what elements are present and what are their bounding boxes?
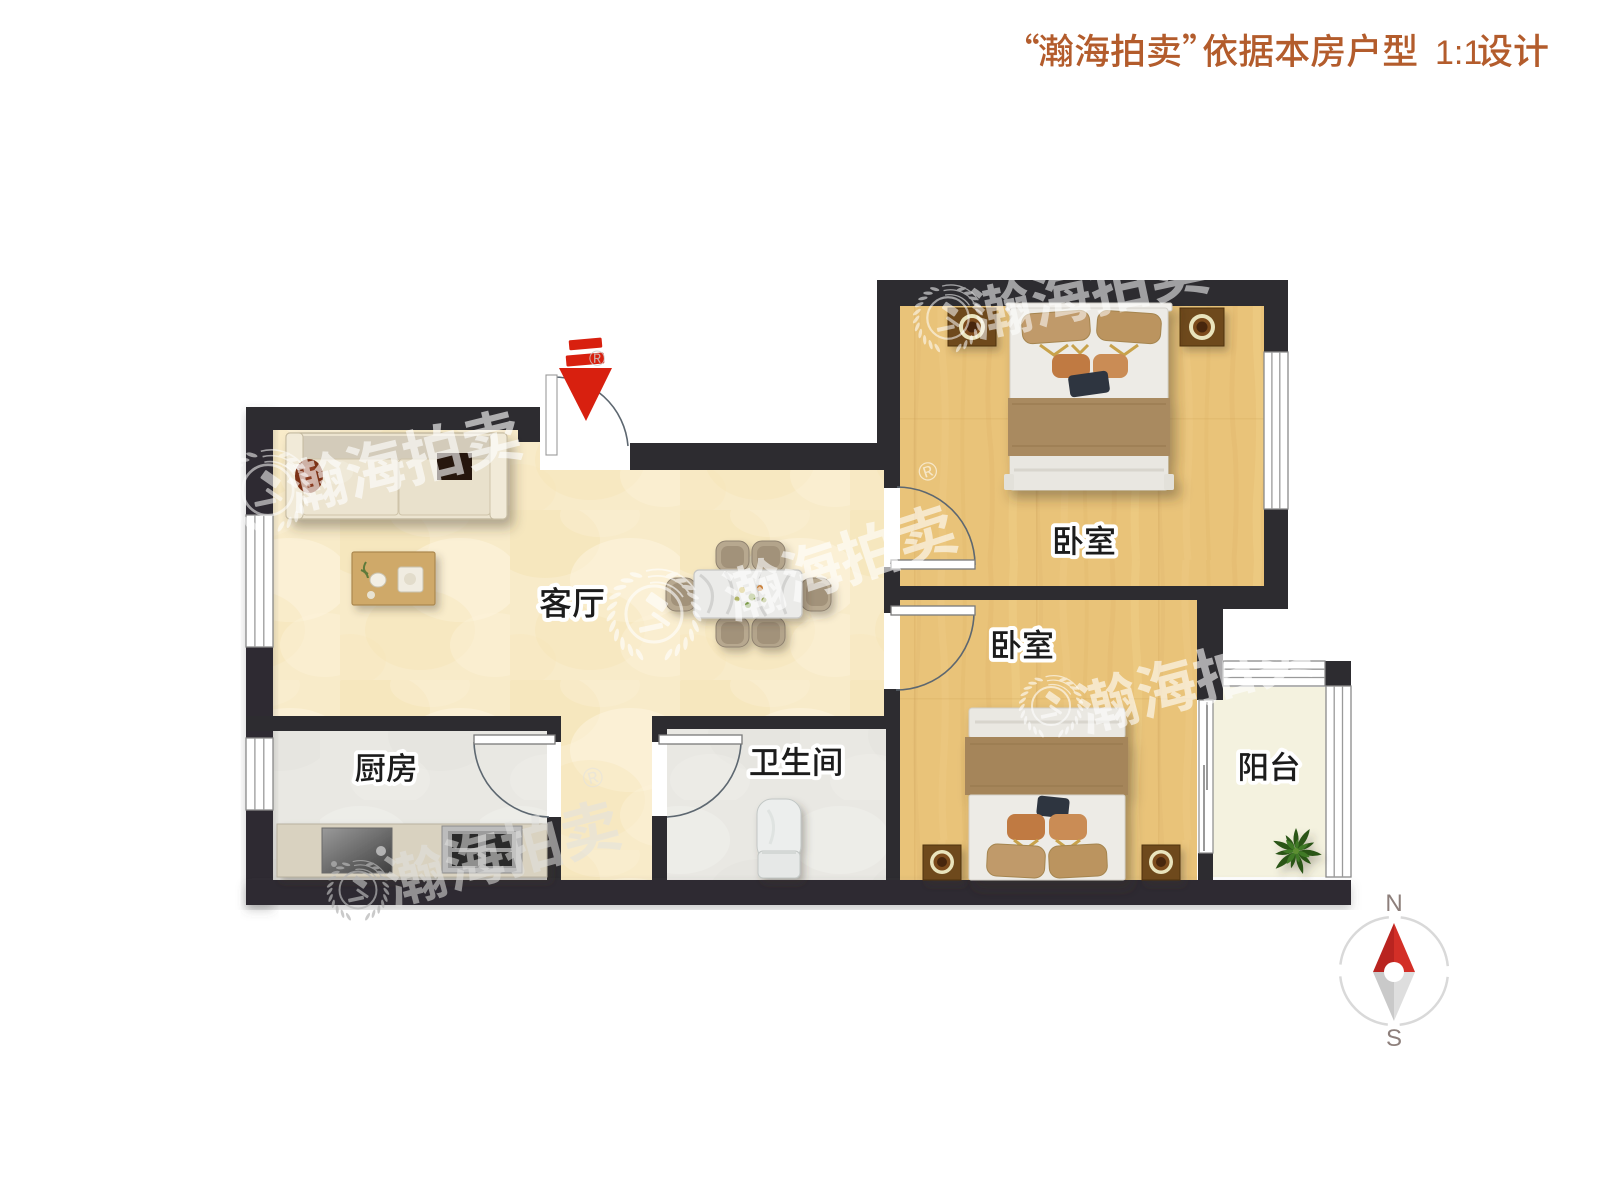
svg-text:1:1: 1:1 bbox=[1435, 34, 1482, 72]
svg-text:N: N bbox=[1385, 890, 1402, 917]
svg-text:®: ® bbox=[589, 346, 605, 371]
svg-text:S: S bbox=[1386, 1025, 1402, 1052]
